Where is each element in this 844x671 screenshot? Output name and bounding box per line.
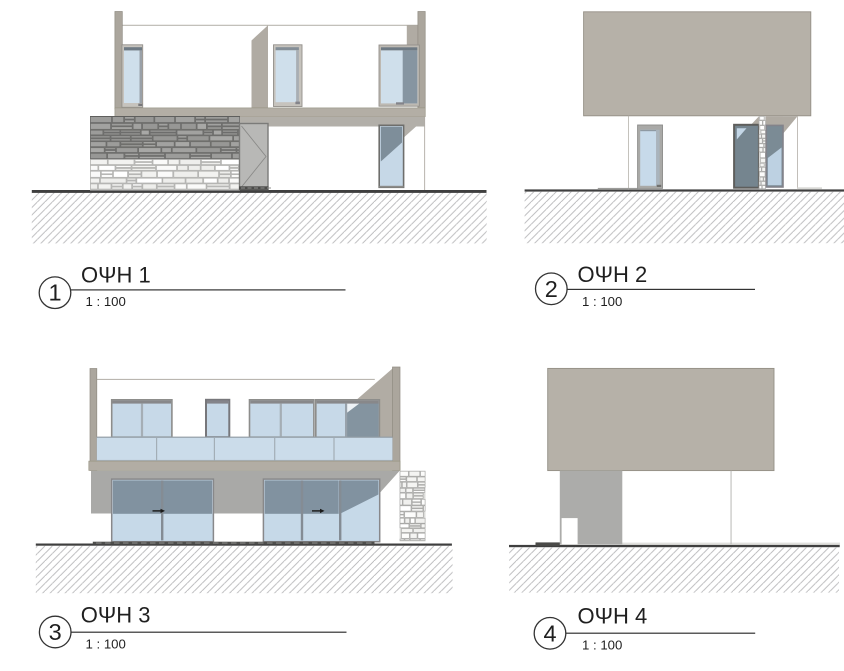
svg-text:ΟΨΗ 3: ΟΨΗ 3 <box>81 603 151 628</box>
svg-text:1: 1 <box>48 280 61 306</box>
svg-text:ΟΨΗ 1: ΟΨΗ 1 <box>81 262 151 287</box>
svg-text:3: 3 <box>49 619 62 645</box>
svg-text:4: 4 <box>543 620 556 646</box>
svg-text:ΟΨΗ 4: ΟΨΗ 4 <box>578 604 648 629</box>
svg-text:ΟΨΗ 2: ΟΨΗ 2 <box>578 262 648 287</box>
svg-text:1 : 100: 1 : 100 <box>582 637 622 652</box>
svg-text:2: 2 <box>545 276 558 302</box>
svg-text:1 : 100: 1 : 100 <box>86 294 126 309</box>
svg-text:1 : 100: 1 : 100 <box>86 636 126 651</box>
svg-text:1 : 100: 1 : 100 <box>582 294 622 309</box>
